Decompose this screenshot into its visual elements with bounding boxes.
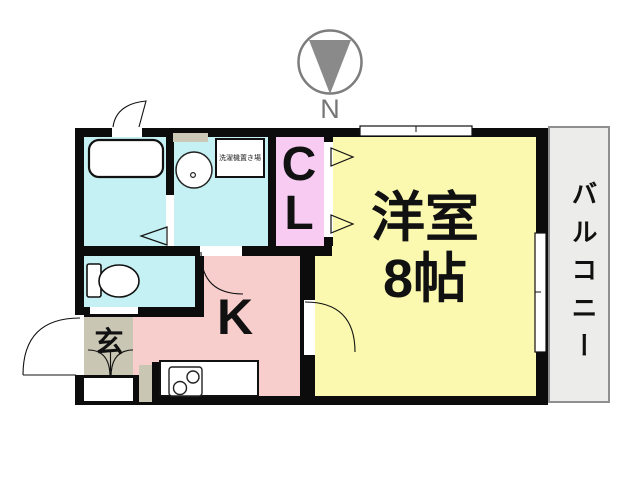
bathroom-window-swing (113, 101, 146, 127)
toilet-bowl-icon (99, 265, 139, 297)
western-room-name: 洋室 (325, 188, 525, 249)
plan-symbols (0, 0, 640, 480)
closet-line1: C (274, 141, 324, 190)
sink-icon (176, 152, 212, 188)
entrance-door-swing (23, 318, 80, 375)
closet-line2: L (274, 190, 324, 239)
closet-folding-door-icon (331, 148, 353, 166)
washer-box: 洗濯機置き場 (215, 138, 265, 178)
closet-label: C L (274, 141, 324, 239)
entrance-label: 玄 (91, 319, 127, 361)
burner-icon (174, 382, 187, 395)
bathtub-icon (89, 140, 163, 177)
balcony-label: バルコニー (565, 150, 602, 400)
western-room-label: 洋室 8帖 (325, 188, 525, 310)
compass-north-label: N (310, 94, 350, 125)
compass-needle-icon (309, 40, 351, 94)
washer-label: 洗濯機置き場 (219, 153, 261, 163)
burner-icon (187, 371, 199, 383)
bathroom-folding-door-icon (141, 227, 167, 245)
floorplan: 洗濯機置き場 N 洋室 8帖 K C L 玄 バルコニー (0, 0, 640, 480)
kitchen-label: K (205, 288, 265, 346)
western-room-size: 8帖 (325, 249, 525, 310)
